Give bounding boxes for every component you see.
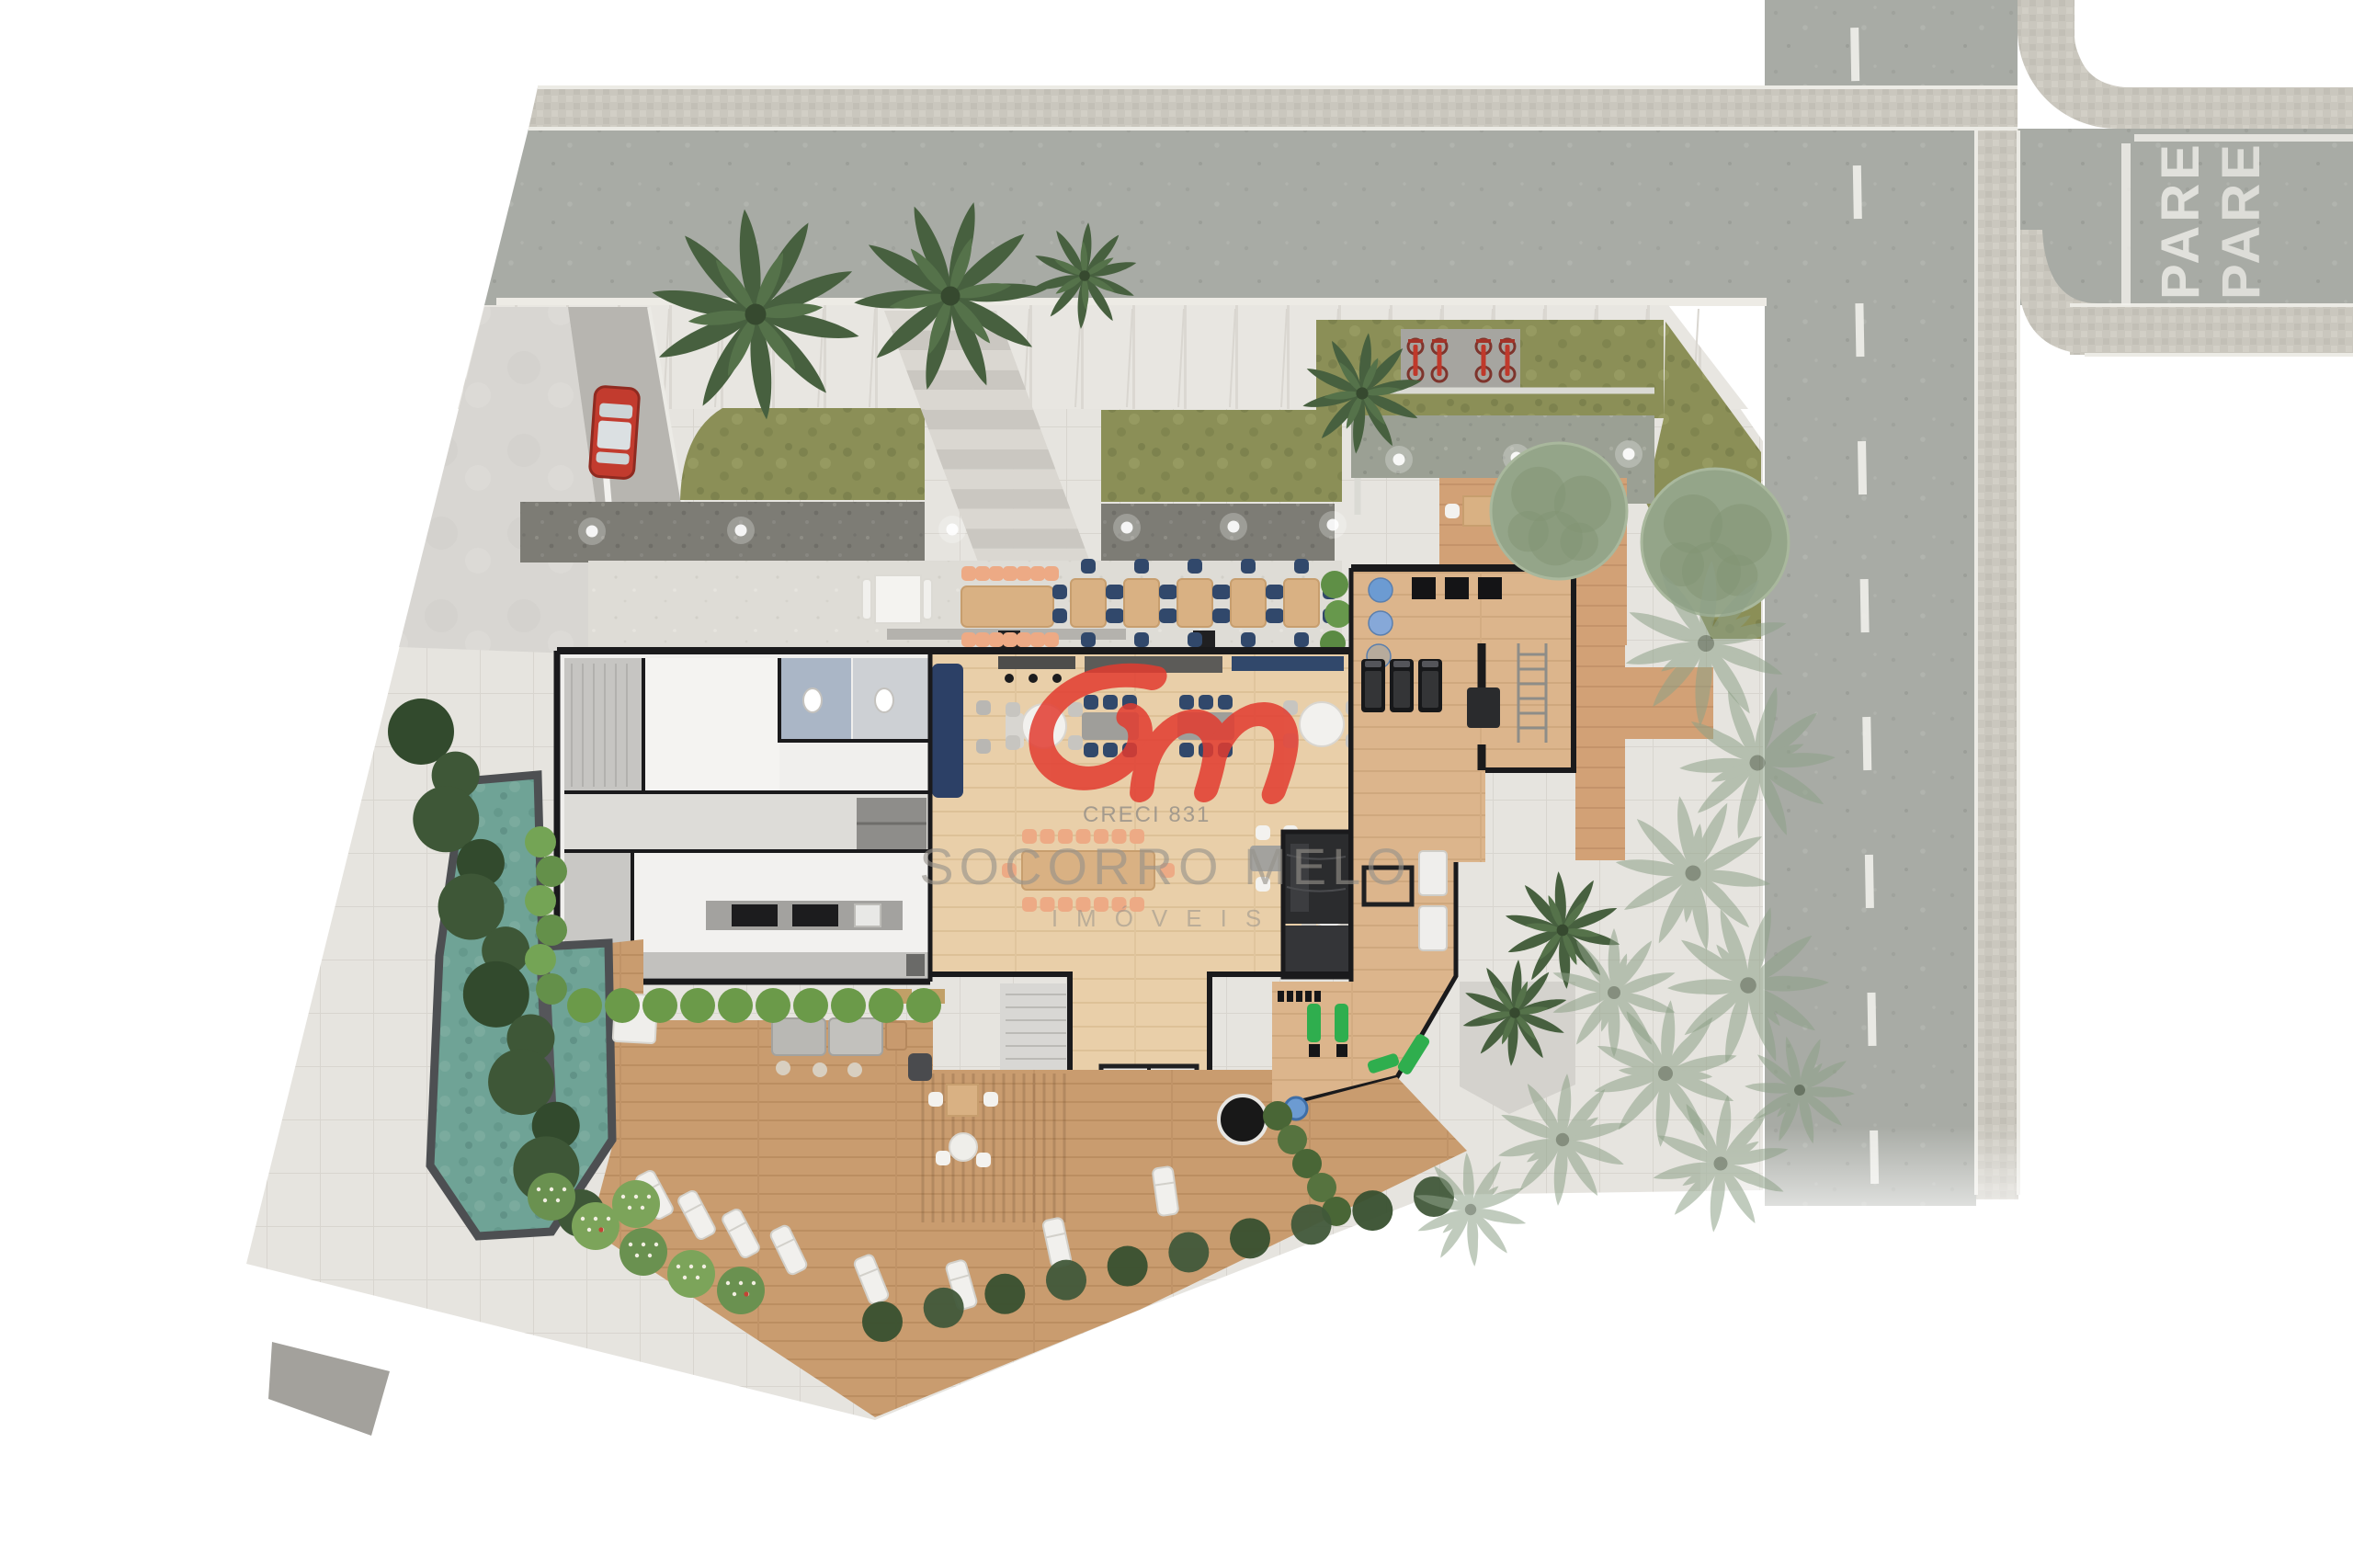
green-bench — [1335, 1004, 1348, 1042]
hedge-shrub — [793, 988, 828, 1023]
white-chair — [928, 1092, 943, 1107]
hedge-shrub — [605, 988, 640, 1023]
round-daybed — [1219, 1096, 1267, 1143]
hedge-shrub — [567, 988, 602, 1023]
bistro-table — [1463, 496, 1493, 526]
peach-chair — [961, 566, 976, 581]
retaining-wall-pad — [268, 1342, 390, 1436]
pouf — [813, 1062, 827, 1077]
toilet — [875, 688, 893, 712]
treadmill — [1361, 659, 1385, 712]
navy-chair — [1052, 585, 1067, 599]
navy-chair — [1052, 608, 1067, 623]
right-block-paver-band — [2070, 303, 2353, 355]
flower-dot — [556, 1199, 560, 1202]
stair-tread — [906, 370, 1026, 391]
hedge-shrub — [525, 826, 556, 858]
stair-tread — [936, 449, 1055, 470]
watermark-creci: CRECI 831 — [1083, 802, 1211, 827]
flower-bush — [717, 1267, 765, 1314]
stair-tread — [928, 429, 1048, 449]
flower-dot — [635, 1254, 639, 1257]
hedge-shrub — [1168, 1232, 1209, 1272]
stair-tread — [943, 470, 1063, 490]
hedge-shrub — [1108, 1246, 1148, 1287]
peach-chair — [1044, 566, 1059, 581]
light-fixture — [578, 517, 606, 545]
hedge-shrub — [536, 973, 567, 1005]
flower-dot — [563, 1187, 566, 1191]
stair-tread — [914, 390, 1033, 410]
black-mat — [1478, 577, 1502, 599]
kitchen-counter — [638, 952, 928, 978]
flower-dot — [647, 1195, 651, 1199]
navy-chair — [1084, 695, 1098, 710]
car-roof — [597, 420, 631, 449]
black-mat — [1412, 577, 1436, 599]
hedge-shrub — [984, 1274, 1025, 1314]
white-bench — [923, 579, 932, 619]
hedge-shrub — [924, 1288, 964, 1328]
bar-stool — [1052, 674, 1062, 683]
hedge-shrub — [525, 885, 556, 916]
peach-chair — [1030, 566, 1045, 581]
flower-dot — [628, 1206, 631, 1210]
navy-chair — [1106, 608, 1120, 623]
navy-chair — [1081, 559, 1096, 574]
hedge-shrub — [525, 944, 556, 975]
hedge-shrub — [536, 915, 567, 946]
long-table-top — [961, 586, 1053, 627]
toilet — [803, 688, 822, 712]
flower-dot — [642, 1243, 645, 1246]
light-fixture — [727, 517, 755, 544]
flower-bush — [572, 1202, 620, 1250]
round-tree — [1491, 443, 1627, 579]
navy-chair — [1134, 559, 1149, 574]
gym-ball — [1369, 578, 1392, 602]
hedge-shrub — [1046, 1260, 1086, 1301]
cable-machine — [1467, 687, 1500, 728]
north-paver-sidewalk — [529, 87, 2018, 129]
site-plan-rendering: PARE PARE — [0, 0, 2353, 1568]
planter-shrub — [1324, 600, 1352, 628]
light-fixture — [1615, 440, 1643, 468]
black-mat — [1445, 577, 1469, 599]
white-bench — [862, 579, 871, 619]
hedge-shrub — [536, 856, 567, 887]
navy-chair — [1294, 559, 1309, 574]
armchair — [976, 739, 991, 754]
navy-chair — [1159, 608, 1174, 623]
navy-chair — [1134, 632, 1149, 647]
side-table-wood — [886, 1022, 906, 1050]
flower-dot — [537, 1187, 540, 1191]
navy-chair — [1212, 585, 1227, 599]
treadmill-row — [1361, 659, 1442, 712]
peach-chair — [1030, 632, 1045, 647]
flower-dot — [543, 1199, 547, 1202]
gym-ball — [1369, 611, 1392, 635]
stop-line — [2121, 143, 2131, 305]
tv-console — [998, 656, 1075, 669]
flower-dot — [621, 1195, 625, 1199]
flower-dot — [581, 1217, 585, 1221]
outdoor-sofa — [829, 1018, 882, 1055]
peach-chair — [1017, 566, 1031, 581]
concrete-ramp-slope — [399, 307, 601, 654]
light-fixture — [1385, 446, 1413, 473]
table-top — [1177, 579, 1212, 627]
navy-chair — [1188, 632, 1202, 647]
peach-chair — [989, 566, 1004, 581]
stair-tread — [950, 489, 1070, 509]
table-top — [1071, 579, 1106, 627]
flower-dot — [629, 1243, 632, 1246]
navy-chair — [1266, 608, 1280, 623]
light-fixture — [1113, 514, 1141, 541]
table-top — [1284, 579, 1319, 627]
flower-dot — [648, 1254, 652, 1257]
cooktop — [732, 904, 778, 926]
pouf — [776, 1061, 790, 1075]
lane-dash — [1862, 717, 1871, 770]
hedge-shrub — [756, 988, 790, 1023]
flower-dot — [550, 1187, 553, 1191]
peach-chair — [1044, 632, 1059, 647]
car-rear-window — [596, 451, 630, 464]
hedge-shrub — [680, 988, 715, 1023]
flower-bush — [667, 1250, 715, 1298]
table-top — [1124, 579, 1159, 627]
stair-tread — [921, 410, 1040, 430]
navy-chair — [1188, 559, 1202, 574]
flower-bush — [612, 1180, 660, 1228]
light-fixture — [1220, 513, 1247, 540]
white-chair — [936, 1151, 950, 1165]
peach-chair — [961, 632, 976, 647]
flower-dot — [607, 1217, 610, 1221]
lane-edge-line — [2134, 134, 2353, 142]
peach-chair — [1017, 632, 1031, 647]
palm-crown — [1608, 986, 1620, 999]
flower-dot — [676, 1265, 680, 1268]
navy-chair — [1212, 608, 1227, 623]
hedge-shrub — [1291, 1204, 1332, 1244]
lane-dash — [1868, 993, 1877, 1046]
flower-dot — [587, 1228, 591, 1232]
bar-stool — [1005, 674, 1014, 683]
lane-dash — [1850, 28, 1859, 81]
treadmill — [1390, 659, 1414, 712]
navy-chair — [1179, 743, 1194, 757]
flower-dot — [696, 1276, 699, 1279]
hedge-shrub — [906, 988, 941, 1023]
navy-chair — [1103, 695, 1118, 710]
lane-dash — [1860, 579, 1870, 632]
navy-chair — [1081, 632, 1096, 647]
hedge-shrub — [862, 1301, 903, 1342]
stairwell-nw — [564, 658, 642, 792]
deck-armchair — [908, 1053, 932, 1081]
gym-mats — [1412, 577, 1502, 599]
east-paver-band — [1976, 129, 2018, 1199]
navy-chair — [1179, 695, 1194, 710]
deck-walk-east — [1575, 561, 1625, 860]
white-chair — [976, 1153, 991, 1167]
pouf — [847, 1062, 862, 1077]
flower-dot — [702, 1265, 706, 1268]
outdoor-terrace — [588, 559, 1352, 656]
white-table — [875, 575, 921, 623]
lane-dash — [1855, 303, 1864, 357]
flower-bush — [528, 1173, 575, 1221]
peach-chair — [989, 632, 1004, 647]
hedge-shrub — [831, 988, 866, 1023]
flower-dot — [641, 1206, 644, 1210]
peach-chair — [975, 632, 990, 647]
treadmill — [1418, 659, 1442, 712]
hedge-shrub — [1352, 1190, 1392, 1231]
stair-tread — [966, 528, 1086, 549]
peach-chair — [975, 566, 990, 581]
navy-chair — [1106, 585, 1120, 599]
light-fixture — [938, 516, 966, 543]
navy-chair — [1241, 632, 1256, 647]
terrace-long-table — [961, 586, 1053, 627]
banquette-navy — [1232, 656, 1344, 671]
gray-chair — [1006, 735, 1020, 750]
light-fixture — [1319, 511, 1347, 539]
gym-balls — [1367, 578, 1392, 668]
navy-chair — [1218, 695, 1233, 710]
bar-stool — [1029, 674, 1038, 683]
navy-chair — [1241, 559, 1256, 574]
site-plan-stage: PARE PARE — [0, 0, 2353, 1568]
flower-dot — [634, 1195, 638, 1199]
flower-dot-red — [598, 1227, 603, 1232]
right-city-block — [2028, 357, 2353, 1213]
flower-dot — [683, 1276, 687, 1279]
lane-dash — [1853, 165, 1862, 219]
peach-chair — [1003, 566, 1017, 581]
flower-dot — [733, 1292, 736, 1296]
lawn-east — [1101, 410, 1342, 502]
stairwell-s — [1000, 983, 1072, 1074]
hedge-shrub — [718, 988, 753, 1023]
pare-road-marking-1: PARE — [2151, 141, 2211, 300]
lane-dash — [1858, 441, 1867, 494]
pare-road-marking-2: PARE — [2211, 141, 2271, 300]
gray-chair — [1006, 702, 1020, 717]
kitchen-sink — [855, 904, 881, 926]
steam-room — [1283, 926, 1353, 977]
white-chair — [983, 1092, 998, 1107]
lawn-west — [680, 408, 925, 500]
deck-square-table — [947, 1085, 978, 1116]
watermark-name: SOCORRO MELO — [919, 837, 1412, 895]
hedge-shrub — [1230, 1218, 1270, 1258]
round-table — [1300, 702, 1344, 746]
outdoor-sofa — [772, 1018, 825, 1055]
flower-dot — [726, 1281, 730, 1285]
flower-dot — [739, 1281, 743, 1285]
navy-chair — [1266, 585, 1280, 599]
flower-bush — [620, 1228, 667, 1276]
fridge — [906, 954, 925, 976]
cooktop — [792, 904, 838, 926]
green-bench — [1307, 1004, 1321, 1042]
sofa-navy — [932, 664, 963, 798]
top-right-city-block — [2075, 0, 2353, 87]
navy-chair — [1103, 743, 1118, 757]
deck-round-table — [949, 1133, 977, 1161]
navy-chair — [1159, 585, 1174, 599]
hedge-shrub — [869, 988, 904, 1023]
navy-chair — [1294, 632, 1309, 647]
navy-chair — [1084, 743, 1098, 757]
lane-dash — [1865, 855, 1874, 908]
peach-chair — [1022, 897, 1037, 912]
bistro-chair — [1445, 504, 1460, 518]
stair-tread — [899, 350, 1018, 370]
flower-dot-red — [744, 1291, 748, 1296]
hedge-shrub — [642, 988, 677, 1023]
peach-chair — [1003, 632, 1017, 647]
armchair — [976, 700, 991, 715]
table-top — [1231, 579, 1266, 627]
stair-tread — [958, 509, 1077, 529]
flower-dot — [654, 1243, 658, 1246]
planter-shrub — [1321, 571, 1348, 598]
watermark-subtitle: IMÓVEIS — [1051, 904, 1279, 932]
car-windshield — [599, 403, 633, 418]
flower-dot — [689, 1265, 693, 1268]
flower-dot — [752, 1281, 756, 1285]
flower-dot — [594, 1217, 597, 1221]
parked-car — [589, 386, 640, 479]
gray-chair — [1068, 735, 1083, 750]
hall-room — [643, 658, 779, 792]
navy-chair — [1199, 695, 1213, 710]
